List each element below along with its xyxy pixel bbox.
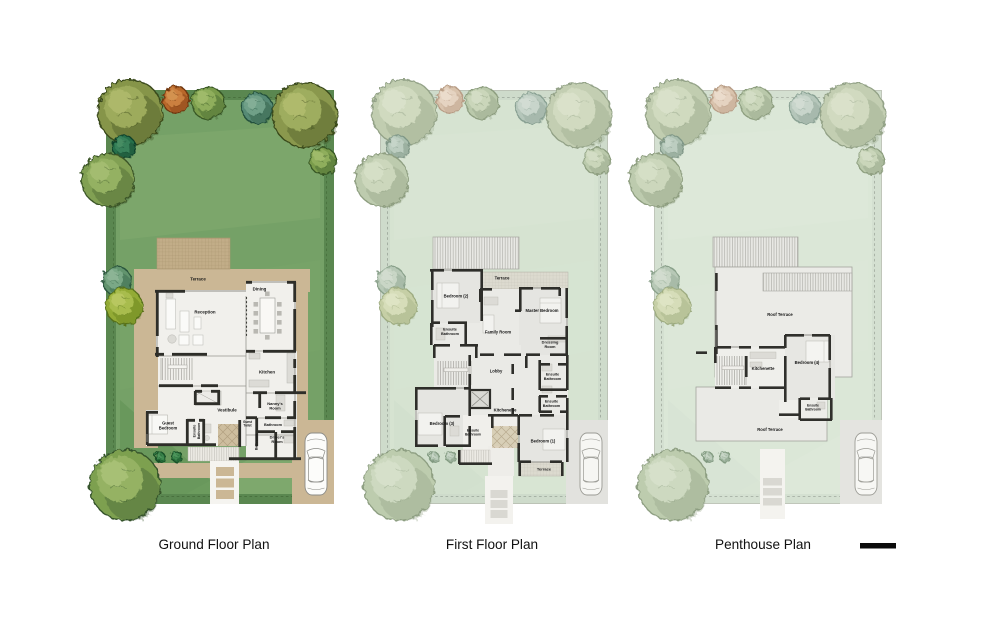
svg-text:First Floor Plan: First Floor Plan	[446, 537, 538, 552]
svg-text:Dining: Dining	[253, 287, 267, 292]
svg-text:Terrace: Terrace	[190, 277, 206, 282]
svg-text:Bathroom: Bathroom	[255, 434, 259, 451]
svg-text:Bathroom: Bathroom	[264, 423, 283, 427]
svg-text:Penthouse Plan: Penthouse Plan	[715, 537, 811, 552]
svg-text:Bathroom: Bathroom	[465, 433, 481, 437]
svg-text:Bedroom: Bedroom	[159, 426, 178, 431]
svg-text:Roof Terrace: Roof Terrace	[757, 427, 783, 432]
svg-text:Bedroom (1): Bedroom (1)	[531, 439, 556, 444]
svg-text:Ensuite: Ensuite	[443, 328, 457, 332]
svg-text:Roof Terrace: Roof Terrace	[767, 312, 793, 317]
svg-text:Kitchen: Kitchen	[259, 370, 275, 375]
svg-text:Bedroom (3): Bedroom (3)	[430, 421, 455, 426]
svg-text:Kitchenette: Kitchenette	[494, 408, 517, 413]
svg-text:Terrace: Terrace	[495, 276, 510, 281]
svg-text:Master Bedroom: Master Bedroom	[525, 308, 558, 313]
svg-text:Room: Room	[544, 344, 556, 349]
svg-text:Bedroom (2): Bedroom (2)	[444, 294, 469, 299]
svg-text:Kitchenette: Kitchenette	[752, 366, 775, 371]
svg-text:Room: Room	[271, 439, 283, 444]
svg-text:Ensuite: Ensuite	[193, 425, 197, 438]
svg-text:Bathroom: Bathroom	[543, 404, 561, 408]
svg-text:Toilet: Toilet	[243, 424, 252, 428]
svg-text:Terrace: Terrace	[537, 467, 552, 472]
svg-text:Vestibule: Vestibule	[217, 408, 237, 413]
svg-text:Bedroom (4): Bedroom (4)	[795, 360, 820, 365]
svg-text:Family Room: Family Room	[485, 330, 512, 335]
svg-text:Bathroom: Bathroom	[197, 423, 201, 440]
svg-text:Reception: Reception	[194, 310, 216, 315]
svg-text:Bathroom: Bathroom	[544, 377, 562, 381]
svg-text:Bathroom: Bathroom	[441, 332, 460, 336]
svg-text:Ground Floor Plan: Ground Floor Plan	[158, 537, 269, 552]
svg-text:Bathroom: Bathroom	[805, 408, 821, 412]
svg-text:Room: Room	[269, 406, 281, 411]
svg-text:Lobby: Lobby	[490, 369, 503, 374]
